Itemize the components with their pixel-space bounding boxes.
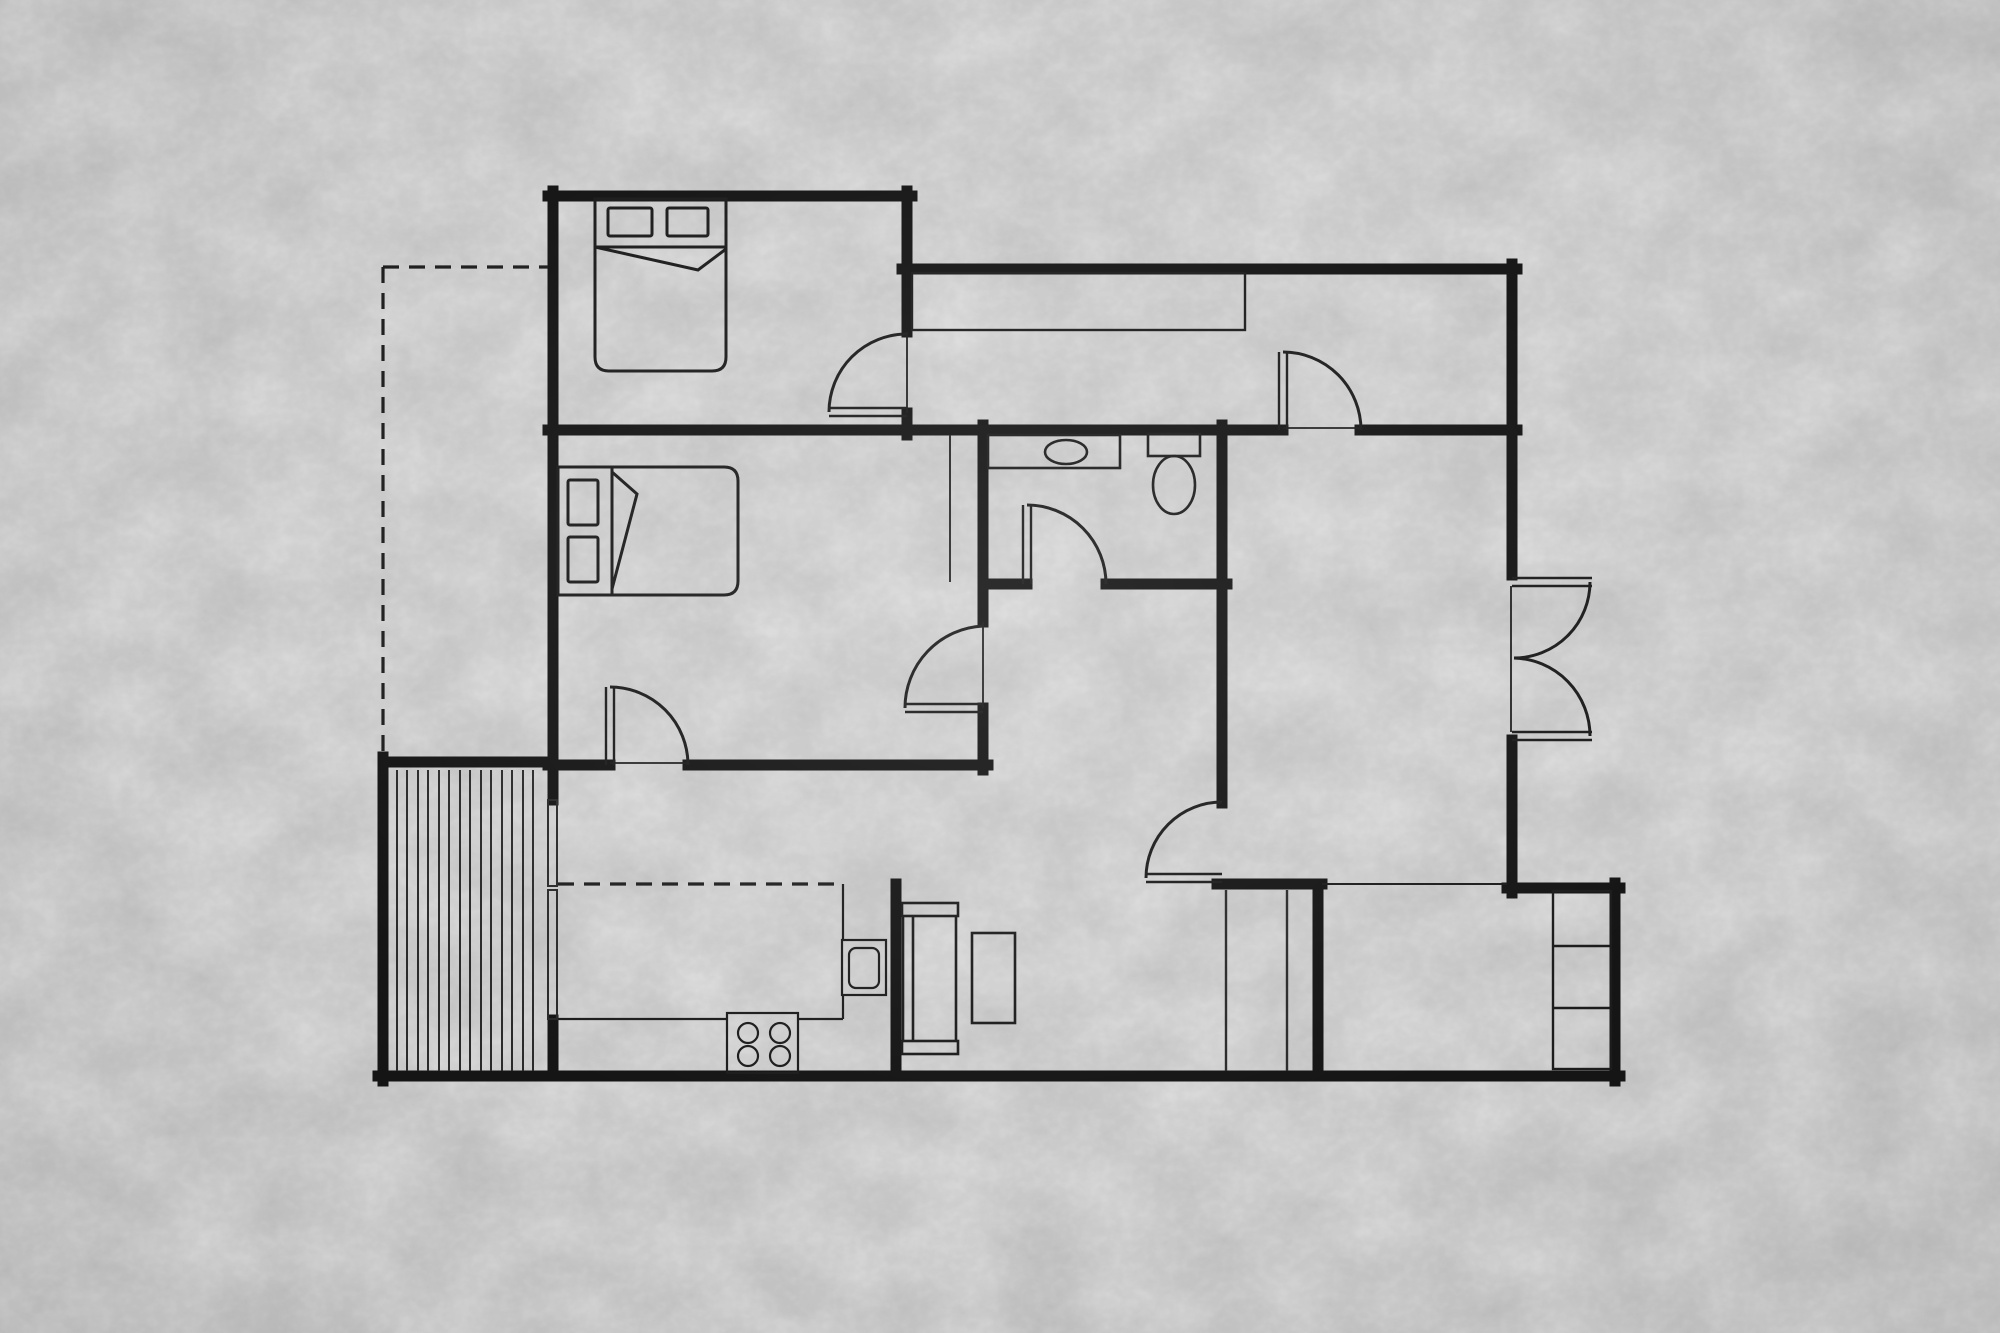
floor-plan-canvas <box>0 0 2000 1333</box>
floor-plan-screenshot <box>0 0 2000 1333</box>
concrete-background <box>0 0 2000 1333</box>
